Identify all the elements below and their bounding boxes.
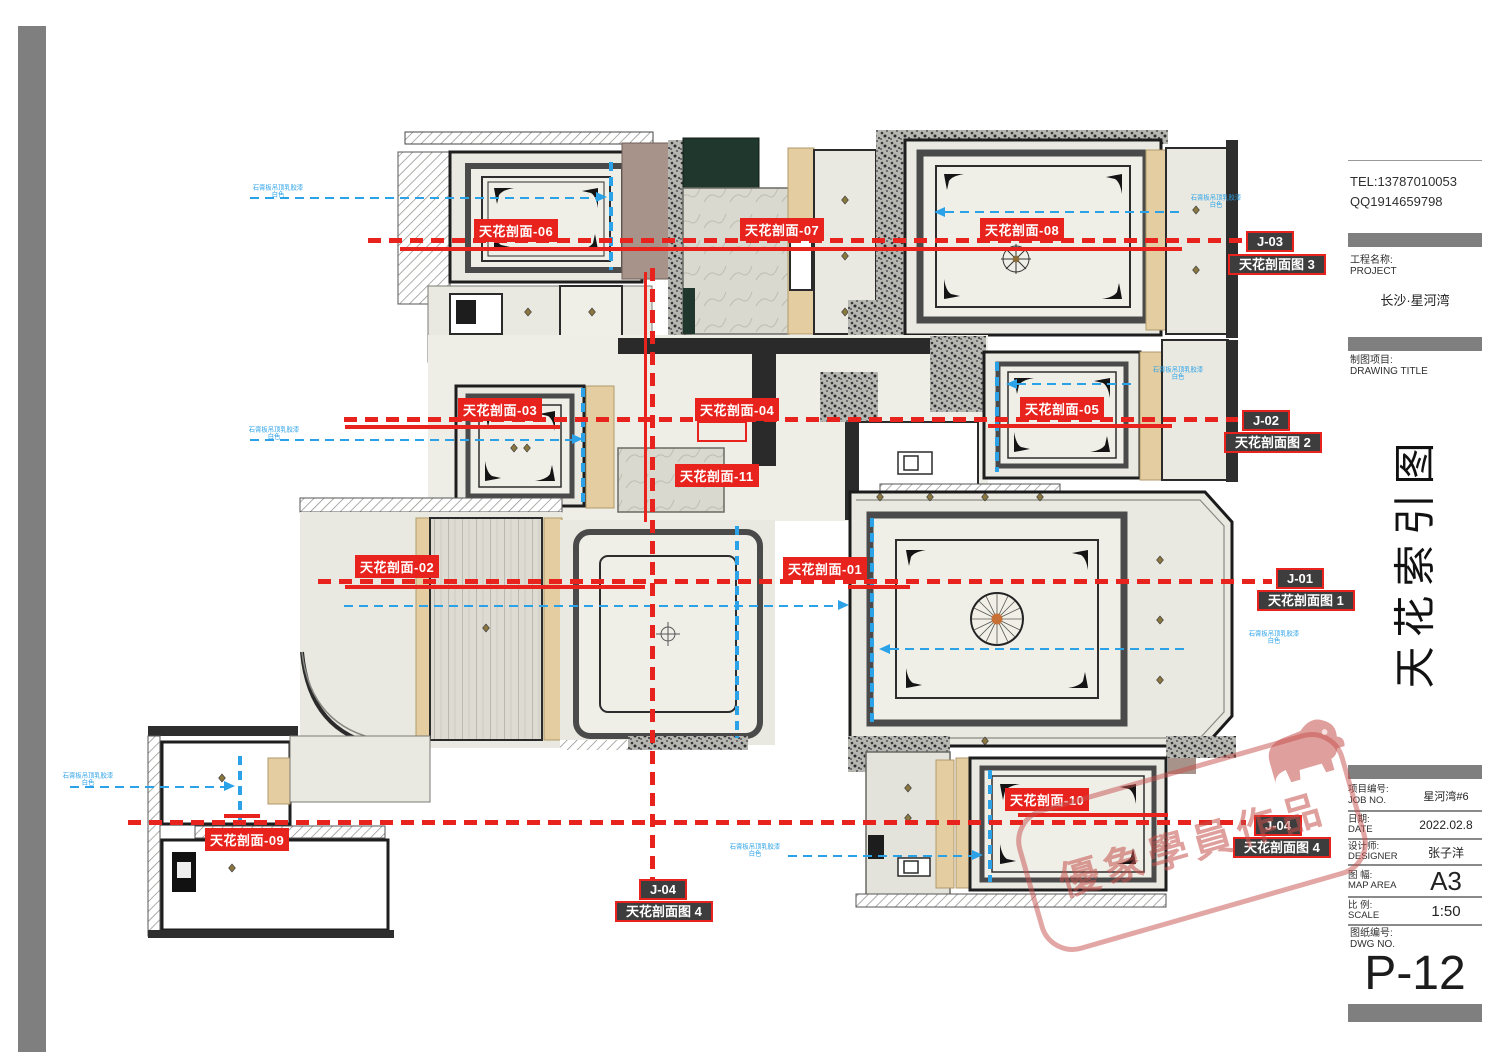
note-line [788,855,972,857]
note-arrow-icon [838,600,849,610]
note-line-vertical [238,756,242,822]
note-text: 石膏板吊顶乳胶漆白色 [1249,631,1299,645]
designer-row: 设计师:DESIGNER 张子洋 [1348,840,1482,866]
note-arrow-icon [972,850,983,860]
title-block: TEL:13787010053 QQ1914659798 工程名称: PROJE… [1348,0,1482,1061]
section-label-07: 天花剖面-07 [740,218,824,241]
section-marker-box [697,421,747,442]
note-arrow-icon [879,644,890,654]
index-marker-j01: J-01 [1276,568,1324,589]
note-line [344,605,838,607]
index-marker-j02: J-02 [1242,410,1290,431]
designer-value: 张子洋 [1410,844,1482,861]
project-label-en: PROJECT [1350,266,1397,277]
note-line-vertical [735,526,739,738]
drawing-title-vertical: 天花索引图 [1382,469,1443,689]
washer-icon [172,852,196,892]
date-row: 日期:DATE 2022.02.8 [1348,812,1482,840]
family-room [560,520,775,750]
map-area-row: 图 幅:MAP AREA A3 [1348,866,1482,898]
room-06-bedroom [398,132,670,304]
section-label-02: 天花剖面-02 [355,555,439,578]
note-text: 石膏板吊顶乳胶漆白色 [1191,195,1241,209]
index-figure-3: 天花剖面图 3 [1228,254,1326,275]
section-label-09: 天花剖面-09 [205,828,289,851]
toilet-icon [898,452,932,474]
section-line-j03-cut [400,247,1182,251]
bench-icon [898,858,930,876]
note-arrow-icon [596,192,607,202]
drawing-title-label-zh: 制图项目: [1350,355,1393,366]
note-text: 石膏板吊顶乳胶漆白色 [1153,367,1203,381]
note-text: 石膏板吊顶乳胶漆白色 [730,844,780,858]
ceiling-plan [0,0,1500,1061]
scale-row: 比 例:SCALE 1:50 [1348,898,1482,926]
dining-room-02 [300,498,562,748]
note-line-vertical [870,518,874,722]
section-label-03: 天花剖面-03 [458,398,542,421]
section-line-j01-cut-a [345,585,645,589]
scale-value: 1:50 [1410,903,1482,920]
contact-qq: QQ1914659798 [1350,196,1443,207]
note-arrow-icon [1006,379,1017,389]
section-line-j02-cut-b [988,424,1172,428]
index-marker-j03: J-03 [1246,231,1294,252]
ceiling-medallion-icon [971,593,1023,645]
index-figure-1: 天花剖面图 1 [1257,590,1355,611]
note-arrow-icon [224,781,235,791]
section-label-06: 天花剖面-06 [474,219,558,242]
section-line-j04-cut-b [224,814,260,818]
index-marker-j04-bottom: J-04 [639,879,687,900]
date-value: 2022.02.8 [1410,818,1482,832]
section-label-01: 天花剖面-01 [783,557,867,580]
note-line [890,648,1190,650]
note-line [945,211,1185,213]
index-figure-2: 天花剖面图 2 [1224,432,1322,453]
contact-tel: TEL:13787010053 [1350,176,1457,187]
section-line-j01-cut-b [848,585,910,589]
note-text: 石膏板吊顶乳胶漆白色 [249,427,299,441]
section-line-j04-vertical [650,268,655,882]
job-no-row: 项目编号:JOB NO. 星河湾#6 [1348,781,1482,812]
dwg-no-value: P-12 [1348,946,1482,1001]
project-label-zh: 工程名称: [1350,255,1393,266]
drawing-title-label-en: DRAWING TITLE [1350,366,1428,377]
drawing-sheet: 石膏板吊顶乳胶漆白色 石膏板吊顶乳胶漆白色 石膏板吊顶乳胶漆白色 石膏板吊顶乳胶… [0,0,1500,1061]
map-area-value: A3 [1410,866,1482,897]
project-name: 长沙·星河湾 [1348,290,1482,309]
section-label-05: 天花剖面-05 [1020,397,1104,420]
section-label-08: 天花剖面-08 [980,218,1064,241]
job-no-value: 星河湾#6 [1410,788,1482,804]
note-text: 石膏板吊顶乳胶漆白色 [253,185,303,199]
living-room-01 [850,484,1232,746]
note-line-vertical [609,162,613,270]
section-label-04: 天花剖面-04 [695,398,779,421]
note-line [1017,383,1131,385]
note-line-vertical [988,770,992,882]
note-line-vertical [581,388,585,502]
room-07-dining [668,138,876,364]
index-figure-4-bottom: 天花剖面图 4 [615,901,713,922]
section-label-11: 天花剖面-11 [675,464,759,487]
note-arrow-icon [934,207,945,217]
section-line-j04-vertical-cut [644,272,647,522]
note-text: 石膏板吊顶乳胶漆白色 [63,773,113,787]
section-line-j02-cut-a [345,425,560,429]
